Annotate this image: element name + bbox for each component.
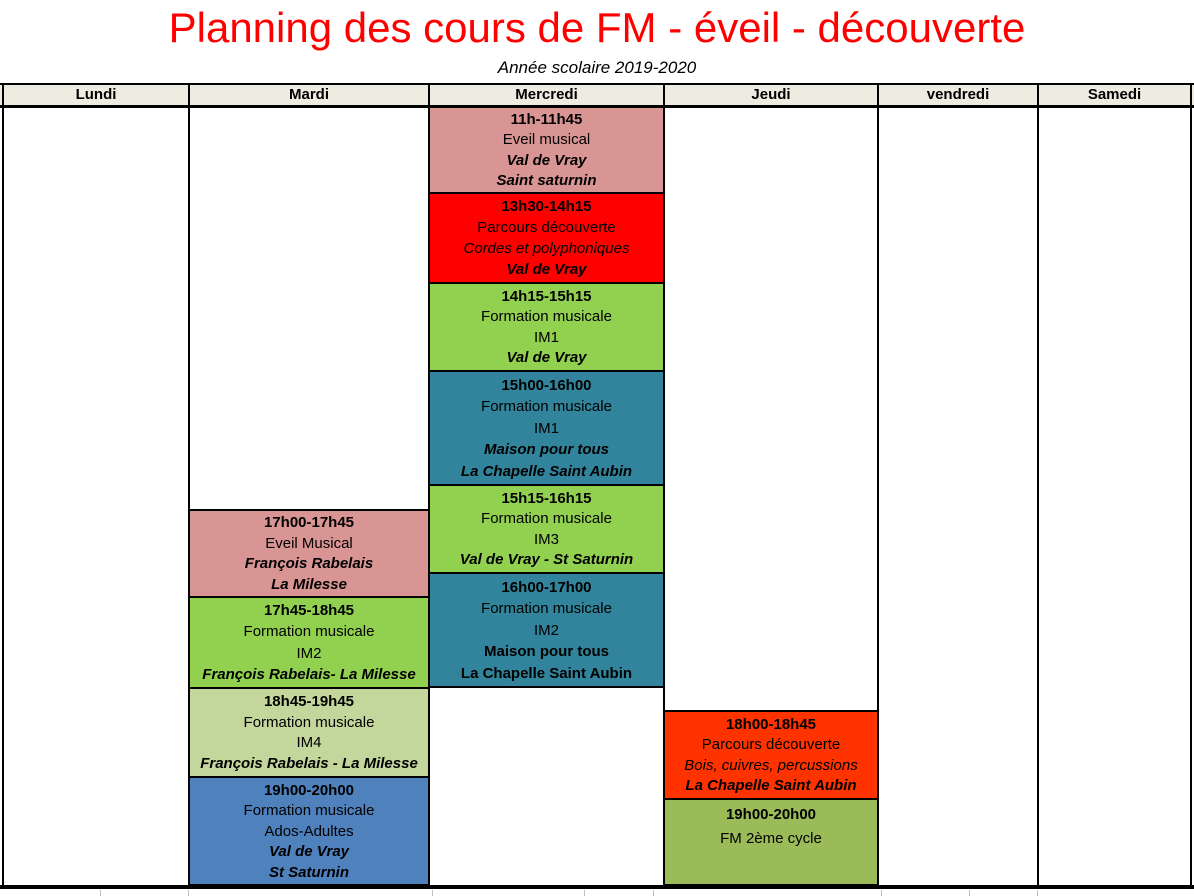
event-mercredi-13h30-14h15: 13h30-14h15Parcours découverteCordes et … — [428, 192, 665, 284]
event-line-venue: St Saturnin — [190, 864, 428, 881]
page-title: Planning des cours de FM - éveil - décou… — [0, 4, 1194, 52]
event-line-venue: Val de Vray - St Saturnin — [430, 551, 663, 568]
column-border — [2, 83, 4, 889]
event-line-course: Formation musicale — [430, 510, 663, 527]
event-line-venue: La Chapelle Saint Aubin — [665, 777, 877, 794]
event-jeudi-19h00-20h00: 19h00-20h00FM 2ème cycle — [663, 798, 879, 886]
event-mercredi-11h-11h45: 11h-11h45Eveil musicalVal de VraySaint s… — [428, 106, 665, 194]
column-header-jeudi: Jeudi — [663, 85, 879, 105]
event-line-course: Formation musicale — [190, 714, 428, 731]
event-line-detail: Cordes et polyphoniques — [430, 240, 663, 257]
event-line-time: 17h45-18h45 — [190, 602, 428, 619]
event-line-venue: Saint saturnin — [430, 172, 663, 189]
event-line-level: IM2 — [190, 645, 428, 662]
event-mercredi-16h00-17h00: 16h00-17h00Formation musicaleIM2Maison p… — [428, 572, 665, 688]
event-line-time: 16h00-17h00 — [430, 579, 663, 596]
column-header-mercredi: Mercredi — [428, 85, 665, 105]
event-line-level: IM1 — [430, 420, 663, 437]
event-mercredi-15h00-16h00: 15h00-16h00Formation musicaleIM1Maison p… — [428, 370, 665, 486]
event-line-venue: Val de Vray — [190, 843, 428, 860]
event-line-course: Formation musicale — [190, 623, 428, 640]
faint-gridline — [584, 890, 585, 896]
event-line-level: IM4 — [190, 734, 428, 751]
subtitle: Année scolaire 2019-2020 — [0, 58, 1194, 78]
event-line-venue-upright: La Chapelle Saint Aubin — [430, 665, 663, 682]
event-line-venue: Val de Vray — [430, 261, 663, 278]
event-line-time: 19h00-20h00 — [190, 782, 428, 799]
column-header-vendredi: vendredi — [877, 85, 1039, 105]
event-mercredi-15h15-16h15: 15h15-16h15Formation musicaleIM3Val de V… — [428, 484, 665, 574]
column-header-samedi: Samedi — [1037, 85, 1192, 105]
event-line-level: IM1 — [430, 329, 663, 346]
faint-gridline — [188, 890, 189, 896]
event-line-time: 15h15-16h15 — [430, 490, 663, 507]
event-mardi-17h00-17h45: 17h00-17h45Eveil MusicalFrançois Rabelai… — [188, 509, 430, 598]
event-jeudi-18h00-18h45: 18h00-18h45Parcours découverteBois, cuiv… — [663, 710, 879, 800]
event-line-venue: Maison pour tous — [430, 441, 663, 458]
event-line-course: Formation musicale — [190, 802, 428, 819]
faint-gridline — [653, 890, 654, 896]
event-line-time: 11h-11h45 — [430, 111, 663, 128]
column-border — [1037, 83, 1039, 889]
event-mardi-17h45-18h45: 17h45-18h45Formation musicaleIM2François… — [188, 596, 430, 689]
event-line-venue: La Chapelle Saint Aubin — [430, 463, 663, 480]
event-mardi-19h00-20h00: 19h00-20h00Formation musicaleAdos-Adulte… — [188, 776, 430, 886]
event-line-course: Formation musicale — [430, 308, 663, 325]
event-line-venue: François Rabelais - La Milesse — [190, 755, 428, 772]
faint-gridline — [100, 890, 101, 896]
event-line-level: Ados-Adultes — [190, 823, 428, 840]
event-line-venue: François Rabelais- La Milesse — [190, 666, 428, 683]
event-line-time: 19h00-20h00 — [665, 806, 877, 823]
event-line-level: IM3 — [430, 531, 663, 548]
event-mercredi-14h15-15h15: 14h15-15h15Formation musicaleIM1Val de V… — [428, 282, 665, 372]
faint-gridline — [881, 890, 882, 896]
event-line-course: Parcours découverte — [430, 219, 663, 236]
event-line-course: Eveil Musical — [190, 535, 428, 552]
event-line-venue: François Rabelais — [190, 555, 428, 572]
event-line-course: FM 2ème cycle — [665, 830, 877, 847]
faint-gridline — [969, 890, 970, 896]
event-line-course: Parcours découverte — [665, 736, 877, 753]
column-header-lundi: Lundi — [2, 85, 190, 105]
event-line-time: 13h30-14h15 — [430, 198, 663, 215]
event-line-detail: Bois, cuivres, percussions — [665, 757, 877, 774]
event-line-venue: La Milesse — [190, 576, 428, 593]
table-bottom-border — [0, 885, 1194, 889]
event-line-time: 15h00-16h00 — [430, 377, 663, 394]
event-line-course: Formation musicale — [430, 398, 663, 415]
event-line-time: 14h15-15h15 — [430, 288, 663, 305]
column-border — [1190, 83, 1192, 889]
table-top-border — [0, 83, 1194, 85]
event-line-level: IM2 — [430, 622, 663, 639]
event-line-venue: Val de Vray — [430, 349, 663, 366]
faint-gridline — [1037, 890, 1038, 896]
event-line-time: 17h00-17h45 — [190, 514, 428, 531]
event-line-course: Eveil musical — [430, 131, 663, 148]
faint-gridline — [432, 890, 433, 896]
event-mardi-18h45-19h45: 18h45-19h45Formation musicaleIM4François… — [188, 687, 430, 778]
column-header-mardi: Mardi — [188, 85, 430, 105]
event-line-venue-upright: Maison pour tous — [430, 643, 663, 660]
event-line-time: 18h00-18h45 — [665, 716, 877, 733]
event-line-time: 18h45-19h45 — [190, 693, 428, 710]
event-line-course: Formation musicale — [430, 600, 663, 617]
event-line-venue: Val de Vray — [430, 152, 663, 169]
planning-page: Planning des cours de FM - éveil - décou… — [0, 0, 1194, 896]
